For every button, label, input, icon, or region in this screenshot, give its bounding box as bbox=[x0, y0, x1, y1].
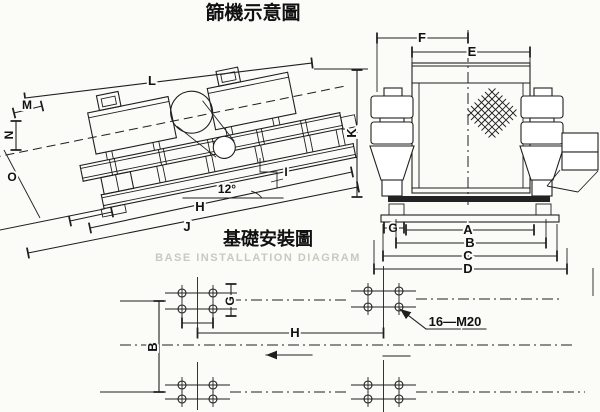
foot-pad bbox=[101, 204, 126, 217]
dim-label-J: J bbox=[183, 219, 190, 234]
bolt-group-top-right bbox=[351, 266, 416, 337]
leader-line bbox=[400, 309, 426, 329]
dim-label-E: E bbox=[468, 44, 477, 59]
dim-line-L bbox=[25, 63, 312, 98]
vibrator-box-right bbox=[204, 58, 297, 138]
mount-bracket bbox=[216, 67, 241, 86]
dim-label-F: F bbox=[418, 30, 426, 45]
installation-title-en: BASE INSTALLATION DIAGRAM bbox=[155, 252, 361, 264]
drive-pulley bbox=[167, 84, 237, 167]
dim-label-N: N bbox=[2, 131, 16, 140]
dim-label-D: D bbox=[463, 261, 472, 276]
dim-label-H-plan: H bbox=[290, 325, 299, 340]
front-base bbox=[381, 196, 559, 222]
dim-label-I: I bbox=[284, 165, 287, 179]
screen-mesh bbox=[468, 89, 517, 138]
front-view-diagram: F E G A B C D bbox=[370, 30, 598, 296]
dim-label-G-plan: G bbox=[223, 296, 237, 305]
bolt-spec-label: 16—M20 bbox=[429, 314, 482, 329]
installation-title: 基礎安裝圖 bbox=[222, 228, 313, 250]
bolt-group-bottom-left bbox=[165, 362, 230, 410]
side-view-diagram: L M N O K 12° H J I bbox=[0, 46, 368, 253]
dim-label-O: O bbox=[7, 170, 16, 184]
mount-bracket bbox=[96, 91, 121, 110]
dim-label-B-plan: B bbox=[145, 342, 160, 351]
dim-label-K: K bbox=[344, 128, 359, 138]
spring-support-right bbox=[520, 88, 564, 196]
dim-label-L: L bbox=[148, 73, 156, 88]
bolt-spec-callout: 16—M20 bbox=[400, 309, 486, 329]
dim-label-H: H bbox=[195, 199, 204, 214]
bolt-group-top-left bbox=[165, 277, 230, 335]
spring-support-left bbox=[370, 88, 414, 196]
ground-line bbox=[0, 209, 104, 230]
dim-label-M: M bbox=[22, 98, 32, 112]
bolt-group-bottom-right bbox=[351, 360, 416, 412]
screen-body bbox=[412, 63, 530, 193]
plan-view-diagram: B G H 16—M20 bbox=[100, 266, 585, 412]
technical-drawing: 篩機示意圖 基礎安裝圖 BASE INSTALLATION DIAGRAM bbox=[0, 0, 600, 412]
main-title: 篩機示意圖 bbox=[205, 1, 300, 24]
angle-label: 12° bbox=[218, 182, 236, 196]
dim-line-O bbox=[4, 150, 40, 218]
